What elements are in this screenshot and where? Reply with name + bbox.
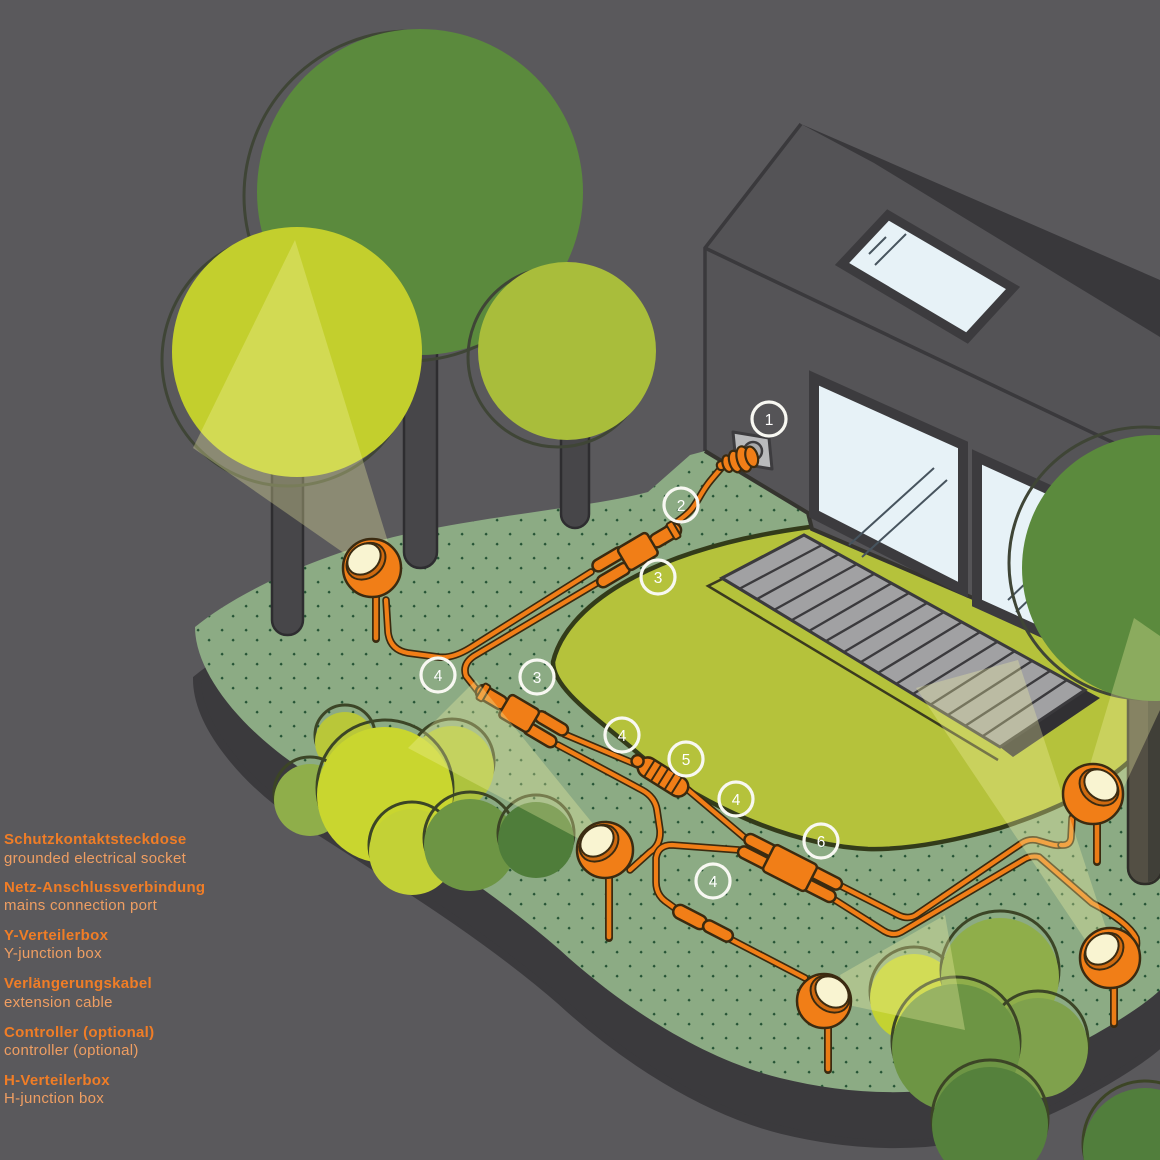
svg-text:H-Verteilerbox: H-Verteilerbox [4, 1072, 110, 1089]
svg-text:5: 5 [682, 752, 691, 769]
svg-text:mains connection port: mains connection port [4, 897, 158, 914]
svg-text:Schutzkontaktsteckdose: Schutzkontaktsteckdose [4, 831, 186, 848]
svg-text:3: 3 [654, 570, 663, 587]
svg-text:Y-Verteilerbox: Y-Verteilerbox [4, 927, 109, 944]
svg-text:Verlängerungskabel: Verlängerungskabel [4, 975, 152, 992]
svg-text:4: 4 [618, 728, 627, 745]
svg-text:Y-junction box: Y-junction box [4, 945, 102, 962]
svg-text:Controller (optional): Controller (optional) [4, 1024, 154, 1041]
svg-text:Netz-Anschlussverbindung: Netz-Anschlussverbindung [4, 879, 205, 896]
svg-text:controller (optional): controller (optional) [4, 1042, 139, 1059]
svg-text:extension cable: extension cable [4, 994, 113, 1011]
svg-text:4: 4 [434, 668, 443, 685]
svg-text:4: 4 [732, 792, 741, 809]
svg-text:grounded electrical socket: grounded electrical socket [4, 850, 187, 867]
svg-text:3: 3 [533, 670, 542, 687]
svg-text:1: 1 [765, 412, 774, 429]
svg-text:6: 6 [817, 834, 826, 851]
svg-text:H-junction box: H-junction box [4, 1090, 104, 1107]
svg-text:2: 2 [677, 498, 686, 515]
svg-text:4: 4 [709, 874, 718, 891]
